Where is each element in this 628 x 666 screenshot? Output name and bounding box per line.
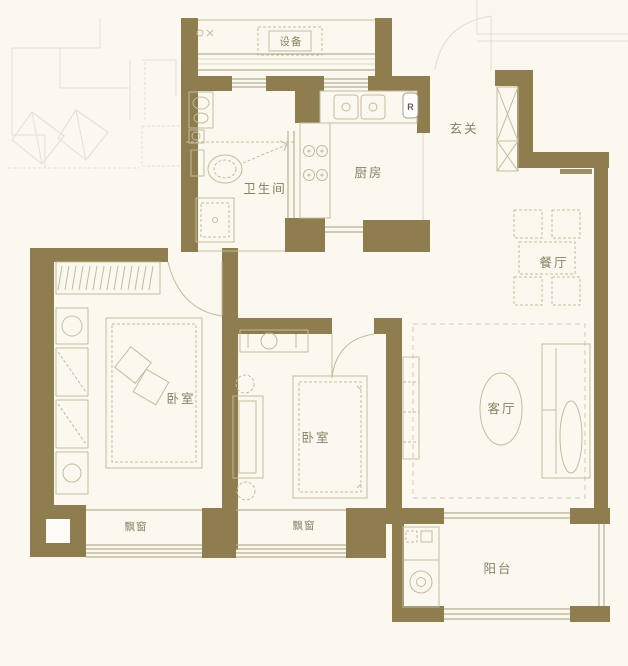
equipment-box xyxy=(197,27,322,55)
entry-door-icon xyxy=(435,16,491,70)
room-label-balcony: 阳台 xyxy=(483,561,512,576)
tv-cabinet-icon xyxy=(403,357,419,459)
room-label-equipment: 设备 xyxy=(280,35,303,48)
door-arcs-layer xyxy=(168,141,374,378)
floor-plan-canvas: R xyxy=(0,0,628,666)
room-label-living-room: 客厅 xyxy=(487,401,516,416)
kitchen-sink-icon xyxy=(334,95,385,119)
entry-closet-icon xyxy=(497,87,518,171)
nightstand-icon xyxy=(56,348,88,494)
room-label-kitchen: 厨房 xyxy=(354,165,383,180)
washing-machine-icon xyxy=(403,527,439,607)
room-label-bathroom: 卫生间 xyxy=(243,182,287,196)
sofa-icon xyxy=(542,344,590,478)
fridge-label: R xyxy=(407,102,414,112)
wardrobe-icon xyxy=(56,262,160,294)
room-label-entry: 玄关 xyxy=(449,121,478,136)
room-label-dining: 餐厅 xyxy=(539,255,568,270)
fridge-badge: R xyxy=(403,93,418,118)
toilet-icon xyxy=(191,150,242,183)
room-label-master-bedroom: 卧室 xyxy=(166,391,195,406)
floor-plan-svg: R xyxy=(0,0,628,666)
room-label-bay-window-second: 飘窗 xyxy=(293,519,316,532)
stove-icon xyxy=(304,146,328,181)
dresser-icon xyxy=(56,308,88,344)
room-label-bay-window-master: 飘窗 xyxy=(125,520,148,533)
room-label-second-bedroom: 卧室 xyxy=(301,430,330,445)
